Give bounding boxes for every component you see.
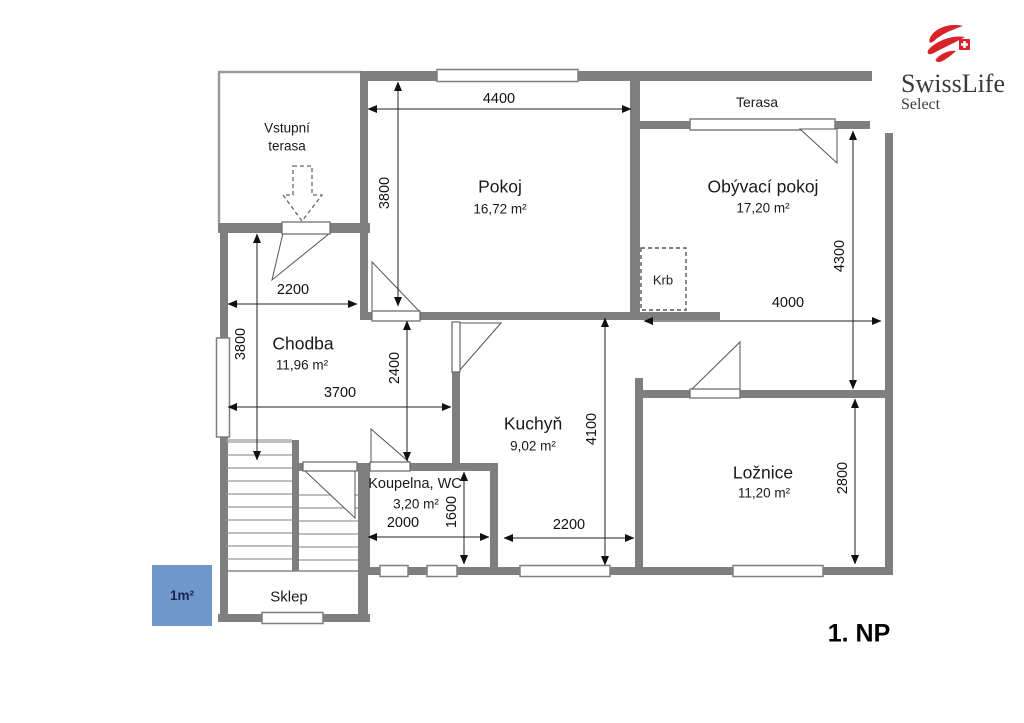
- scale-legend-box: 1m²: [152, 565, 212, 626]
- entrance-arrow: [283, 166, 322, 221]
- room-area-chodba: 11,96 m²: [276, 358, 328, 373]
- dim-koupelna-height: 1600: [444, 496, 460, 528]
- room-label-sklep: Sklep: [270, 589, 308, 606]
- scale-legend-label: 1m²: [170, 588, 194, 603]
- room-area-koupelna: 3,20 m²: [393, 497, 439, 512]
- brand-logo: SwissLife Select: [893, 22, 1013, 113]
- room-label-vstupni-terasa-line1: Vstupní: [264, 121, 310, 136]
- room-area-loznice: 11,20 m²: [738, 486, 790, 501]
- room-label-obyvaci-pokoj: Obývací pokoj: [708, 177, 819, 198]
- dim-obyvaci-height: 4300: [832, 240, 848, 272]
- dim-kuchyn-width: 2200: [553, 517, 585, 533]
- room-label-koupelna: Koupelna, WC: [368, 476, 462, 492]
- room-label-loznice: Ložnice: [733, 463, 793, 484]
- dim-pokoj-height: 3800: [377, 177, 393, 209]
- room-label-kuchyn: Kuchyň: [504, 414, 562, 435]
- dim-chodba-height: 3800: [233, 328, 249, 360]
- room-label-vstupni-terasa-line2: terasa: [268, 139, 306, 154]
- dim-obyvaci-width: 4000: [772, 295, 804, 311]
- room-area-obyvaci-pokoj: 17,20 m²: [736, 201, 789, 216]
- dim-pokoj-width: 4400: [483, 91, 515, 107]
- brand-logo-subtext: Select: [901, 97, 1013, 113]
- dim-chodba-width: 3700: [324, 385, 356, 401]
- room-label-chodba: Chodba: [272, 334, 333, 355]
- floorplan-page: Pokoj 16,72 m² Obývací pokoj 17,20 m² Ch…: [0, 0, 1024, 723]
- room-label-terasa: Terasa: [736, 94, 778, 110]
- floor-label: 1. NP: [828, 620, 891, 649]
- room-area-pokoj: 16,72 m²: [473, 202, 526, 217]
- brand-logo-text: SwissLife: [893, 71, 1013, 97]
- dim-hall-kitchen-height: 2400: [387, 352, 403, 384]
- dim-chodba-top-width: 2200: [277, 282, 309, 298]
- fireplace-label: Krb: [653, 273, 673, 288]
- dim-kuchyn-height: 4100: [584, 413, 600, 445]
- brand-logo-icon: [893, 22, 1013, 64]
- room-label-pokoj: Pokoj: [478, 177, 522, 198]
- room-area-kuchyn: 9,02 m²: [510, 439, 556, 454]
- dim-koupelna-width: 2000: [387, 515, 419, 531]
- dim-loznice-height: 2800: [835, 462, 851, 494]
